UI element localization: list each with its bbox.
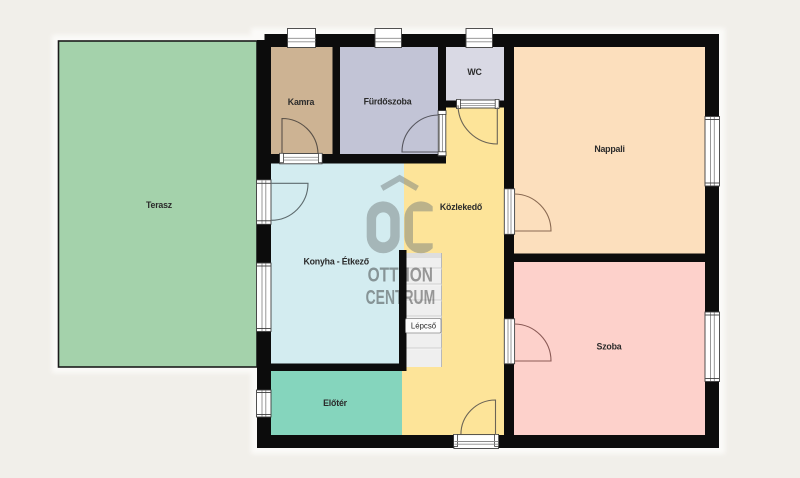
svg-text:Nappali: Nappali <box>594 144 624 154</box>
svg-text:Fürdőszoba: Fürdőszoba <box>364 96 412 106</box>
svg-text:Konyha - Étkező: Konyha - Étkező <box>303 256 369 266</box>
svg-text:Szoba: Szoba <box>597 341 622 351</box>
svg-text:Előtér: Előtér <box>323 398 348 408</box>
svg-text:Kamra: Kamra <box>288 97 315 107</box>
svg-text:WC: WC <box>467 67 482 77</box>
svg-text:Terasz: Terasz <box>146 200 173 210</box>
svg-text:Lépcső: Lépcső <box>411 321 437 330</box>
svg-text:Közlekedő: Közlekedő <box>440 202 483 212</box>
